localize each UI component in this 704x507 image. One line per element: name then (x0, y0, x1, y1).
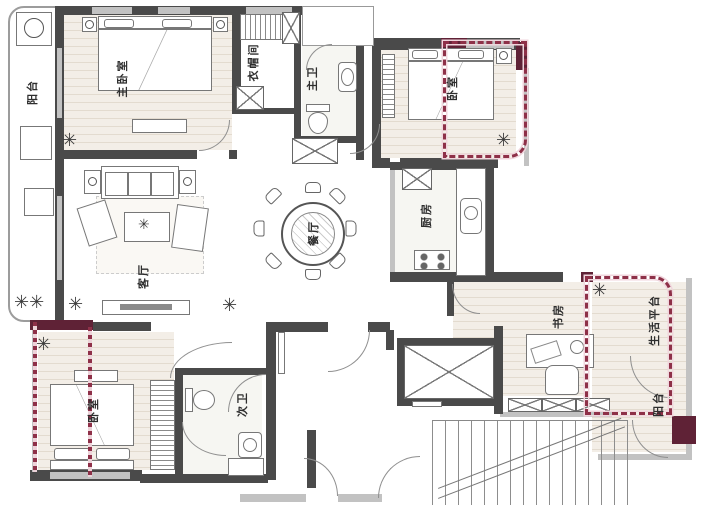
wall (397, 345, 404, 405)
wall (485, 168, 494, 280)
wall-maroon-block (30, 320, 93, 330)
wardrobe (382, 54, 395, 118)
label-kitchen: 厨房 (418, 202, 434, 228)
window (57, 196, 62, 280)
cabinet (236, 86, 264, 110)
highlight-line (33, 322, 37, 472)
door-arc (170, 342, 232, 378)
stove-icon (414, 250, 450, 270)
kitchen-sliding-door (390, 170, 395, 272)
label-living-room: 客厅 (135, 263, 151, 289)
label-bedroom-bottom-left: 卧室 (85, 397, 101, 423)
door-arc (378, 456, 420, 498)
bed-bench (132, 119, 187, 133)
elevator-door (412, 401, 442, 407)
dining-chair (305, 269, 321, 280)
sofa-cushion (151, 172, 174, 196)
wall-maroon-block (672, 416, 696, 444)
door-arc (304, 458, 338, 496)
dining-chair (346, 221, 357, 237)
wall (397, 338, 501, 345)
dining-chair (254, 221, 265, 237)
bed-bench (74, 370, 118, 382)
wall (372, 158, 390, 168)
wardrobe (150, 380, 175, 470)
lamp-icon (85, 20, 94, 29)
pillow (104, 19, 134, 28)
window (158, 7, 190, 14)
door-arc (328, 330, 370, 372)
sink-basin-icon (341, 68, 354, 86)
window (57, 48, 62, 118)
lamp-icon (88, 177, 97, 186)
label-second-bath: 次卫 (234, 391, 250, 417)
pillow (54, 448, 90, 460)
elevator-shaft (404, 345, 494, 399)
office-chair (545, 365, 579, 395)
label-dining-room: 餐厅 (305, 220, 321, 246)
label-master-bath: 主卫 (304, 65, 320, 91)
label-walk-in-closet: 衣帽间 (245, 43, 261, 82)
door-arc (632, 420, 668, 458)
toilet-tank (306, 104, 330, 112)
outer-wall (240, 494, 306, 502)
floor-plan: ✳✳ (0, 0, 704, 507)
bed-headboard (50, 460, 134, 470)
window-seat-cabinet (542, 398, 576, 412)
balcony-table (24, 188, 54, 216)
sofa-cushion (128, 172, 151, 196)
balcony-left-shell (8, 6, 60, 322)
table-plant-icon: ✳ (138, 218, 150, 232)
label-study: 书房 (550, 303, 566, 329)
washer-drum-icon (24, 18, 44, 38)
pillow (162, 19, 192, 28)
dining-chair (328, 186, 347, 205)
toilet-tank (185, 388, 193, 412)
plant-icon: ✳ (68, 296, 83, 314)
outer-wall (338, 494, 382, 502)
toilet-icon (193, 390, 215, 410)
dining-chair (305, 182, 321, 193)
sink-basin-icon (464, 206, 478, 220)
balcony-chair (20, 126, 52, 160)
plant-icon: ✳ (36, 336, 51, 354)
lamp-icon (216, 20, 225, 29)
bath-cabinet (228, 458, 264, 476)
fridge (402, 168, 432, 190)
label-master-bedroom: 主卧室 (114, 59, 130, 98)
pillow (96, 448, 130, 460)
pillow (412, 50, 438, 59)
desk-lamp-icon (570, 340, 584, 354)
armchair (171, 204, 209, 252)
label-balcony-bottom-right: 阳台 (650, 391, 666, 417)
label-bedroom-top-right: 卧室 (444, 75, 460, 101)
window (92, 7, 132, 14)
label-utility-platform: 生活平台 (646, 294, 662, 346)
wall (386, 330, 394, 350)
wall (266, 330, 276, 480)
light-well (302, 6, 374, 46)
label-balcony-left: 阳台 (24, 79, 40, 105)
tv-icon (120, 304, 172, 310)
window-seat-cabinet (508, 398, 542, 412)
wall (229, 150, 237, 159)
plant-icon: ✳ (222, 297, 237, 315)
lamp-icon (183, 177, 192, 186)
door-leaf (278, 332, 285, 374)
sink-basin-icon (243, 438, 257, 452)
sofa-cushion (105, 172, 128, 196)
dining-chair (263, 252, 282, 271)
flower-plant-icon: ✳✳ (14, 294, 44, 312)
hall-cabinet (292, 138, 338, 164)
wall (372, 42, 381, 166)
cabinet (282, 12, 300, 44)
dining-chair (263, 186, 282, 205)
wall (93, 322, 151, 331)
wall (55, 150, 197, 159)
plant-icon: ✳ (62, 132, 77, 150)
